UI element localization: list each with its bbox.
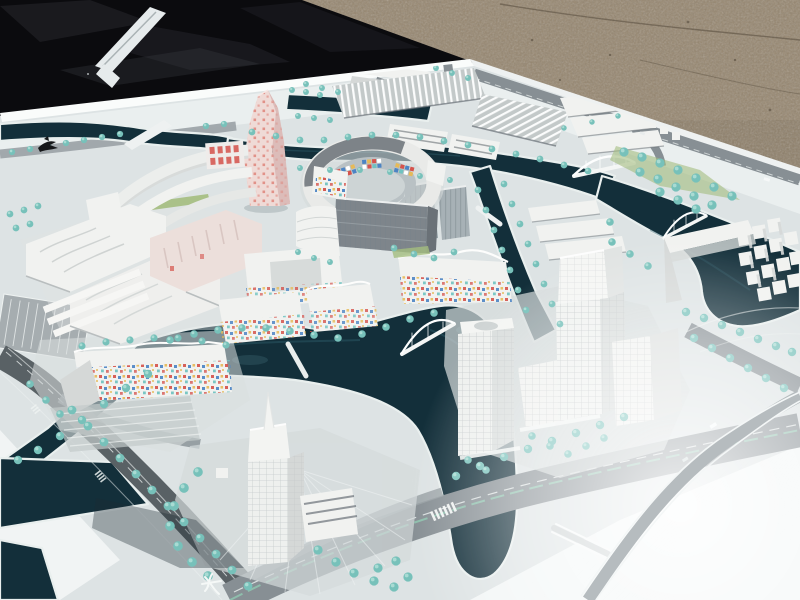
ring-courtyard-building — [296, 137, 446, 256]
model-board — [0, 59, 800, 600]
plaza-podium — [300, 488, 358, 542]
scene-svg: Outdoor photograph of a white architectu… — [0, 0, 800, 600]
photo-of-architecture-model: Outdoor photograph of a white architectu… — [0, 0, 800, 600]
ring-front-glass-slab — [334, 198, 438, 254]
red-window-block — [205, 141, 245, 170]
